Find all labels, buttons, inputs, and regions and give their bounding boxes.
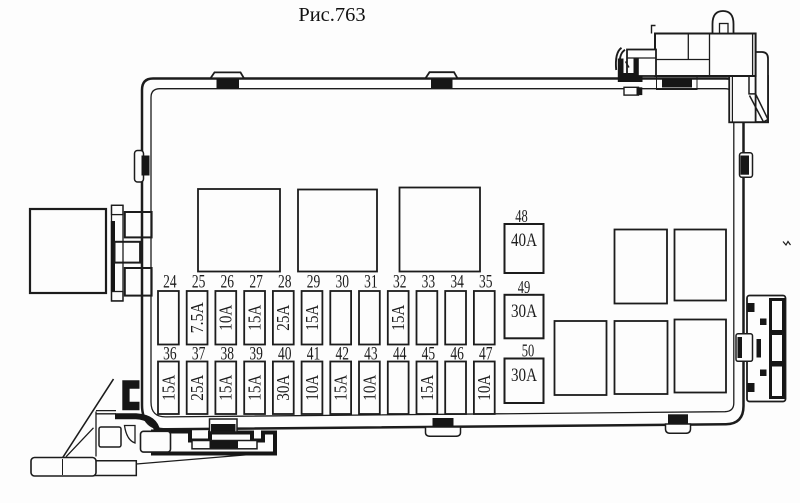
svg-text:15A: 15A bbox=[302, 305, 322, 331]
svg-text:15A: 15A bbox=[331, 375, 351, 401]
svg-text:30A: 30A bbox=[273, 375, 293, 401]
svg-text:29: 29 bbox=[307, 272, 321, 293]
svg-text:24: 24 bbox=[163, 272, 177, 293]
svg-text:15A: 15A bbox=[417, 375, 437, 401]
svg-text:15A: 15A bbox=[245, 305, 265, 331]
svg-text:15A: 15A bbox=[245, 375, 265, 401]
svg-text:10A: 10A bbox=[216, 305, 236, 331]
svg-text:15A: 15A bbox=[388, 305, 408, 331]
svg-text:10A: 10A bbox=[474, 375, 494, 401]
svg-text:30A: 30A bbox=[511, 301, 537, 322]
svg-text:15A: 15A bbox=[216, 375, 236, 401]
svg-text:30A: 30A bbox=[511, 365, 537, 386]
svg-text:32: 32 bbox=[393, 272, 407, 293]
svg-text:34: 34 bbox=[450, 272, 464, 293]
svg-text:26: 26 bbox=[221, 272, 235, 293]
svg-text:28: 28 bbox=[278, 272, 292, 293]
svg-text:7.5A: 7.5A bbox=[187, 302, 207, 333]
svg-text:25: 25 bbox=[192, 272, 206, 293]
svg-text:27: 27 bbox=[249, 272, 263, 293]
svg-text:33: 33 bbox=[422, 272, 436, 293]
svg-text:30: 30 bbox=[335, 272, 349, 293]
svg-text:25A: 25A bbox=[187, 375, 207, 401]
svg-text:25A: 25A bbox=[273, 305, 293, 331]
svg-text:10A: 10A bbox=[359, 375, 379, 401]
svg-text:10A: 10A bbox=[302, 375, 322, 401]
svg-text:15A: 15A bbox=[158, 375, 178, 401]
svg-text:31: 31 bbox=[364, 272, 378, 293]
svg-text:35: 35 bbox=[479, 272, 493, 293]
svg-text:Рис.763: Рис.763 bbox=[298, 4, 365, 26]
svg-text:40A: 40A bbox=[511, 230, 537, 251]
